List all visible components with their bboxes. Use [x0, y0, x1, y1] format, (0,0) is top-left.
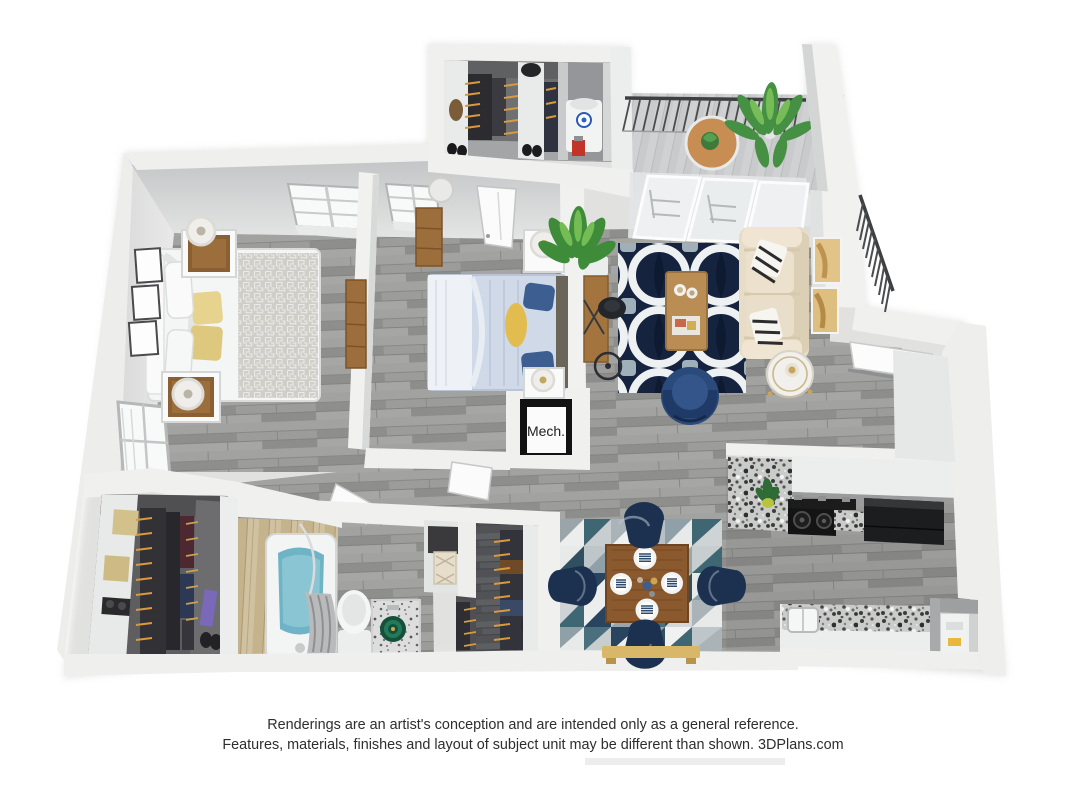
svg-text:Features, materials, finishes: Features, materials, finishes and layout… — [222, 737, 843, 753]
svg-text:Renderings are an artist's con: Renderings are an artist's conception an… — [267, 717, 799, 733]
svg-text:Mech.: Mech. — [527, 423, 565, 439]
